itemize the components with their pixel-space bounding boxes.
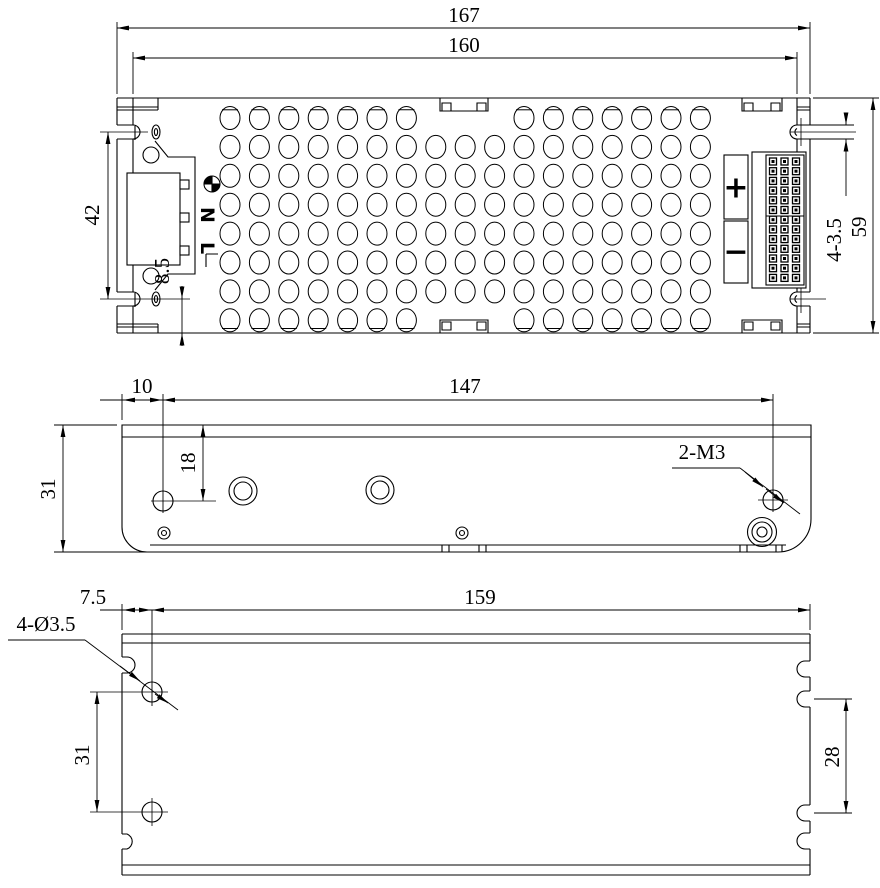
dim-slot-to-edge: 8.5	[150, 258, 174, 284]
plus-symbol: +	[723, 171, 748, 206]
neutral-label: N	[196, 207, 218, 223]
bottom-view-dimensions: 7.5 159 4-Ø3.5 31 28	[8, 585, 852, 813]
side-view-holes	[151, 476, 788, 547]
side-rail-slots	[122, 657, 810, 849]
drawing-canvas: N L + − 167 160 42	[0, 0, 880, 883]
top-view-outline	[117, 98, 810, 333]
bottom-view-outline	[122, 634, 810, 875]
output-terminals: + −	[723, 155, 748, 283]
dim-hole-inset-bottom: 7.5	[80, 585, 106, 609]
terminal-pin	[180, 246, 189, 255]
ground-icon	[204, 176, 220, 192]
dim-slot-width-note: 4-3.5	[822, 218, 846, 262]
dim-body-length: 160	[448, 33, 480, 57]
hole-note: 4-Ø3.5	[17, 612, 76, 636]
dim-height: 31	[36, 479, 60, 500]
vent-pattern	[220, 107, 710, 332]
dim-hole-drop: 18	[176, 453, 200, 474]
base-tabs	[442, 545, 782, 552]
dim-length: 159	[464, 585, 496, 609]
top-view: N L + − 167 160 42	[80, 3, 879, 346]
technical-drawing: N L + − 167 160 42	[0, 0, 880, 883]
side-view-dimensions: 10 147 31 18 2-M3	[36, 374, 800, 552]
bottom-view-holes	[90, 682, 168, 826]
dim-overall-length: 167	[448, 3, 480, 27]
dim-hole-span-bottom: 31	[70, 745, 94, 766]
dim-overall-width: 59	[847, 217, 871, 238]
minus-symbol: −	[723, 235, 748, 270]
dim-hole-inset: 10	[132, 374, 153, 398]
ac-terminal-block	[127, 173, 189, 265]
side-view: 10 147 31 18 2-M3	[36, 374, 811, 552]
dim-slot-span: 42	[80, 205, 104, 226]
terminal-pin	[180, 213, 189, 222]
output-connector	[752, 152, 806, 288]
live-label: L	[196, 242, 218, 254]
terminal-pin	[180, 180, 189, 189]
bottom-view: 7.5 159 4-Ø3.5 31 28	[8, 585, 852, 875]
flange-lips	[117, 98, 810, 333]
thread-note: 2-M3	[679, 440, 726, 464]
dim-slot-span-bottom: 28	[820, 747, 844, 768]
dim-hole-span: 147	[449, 374, 481, 398]
